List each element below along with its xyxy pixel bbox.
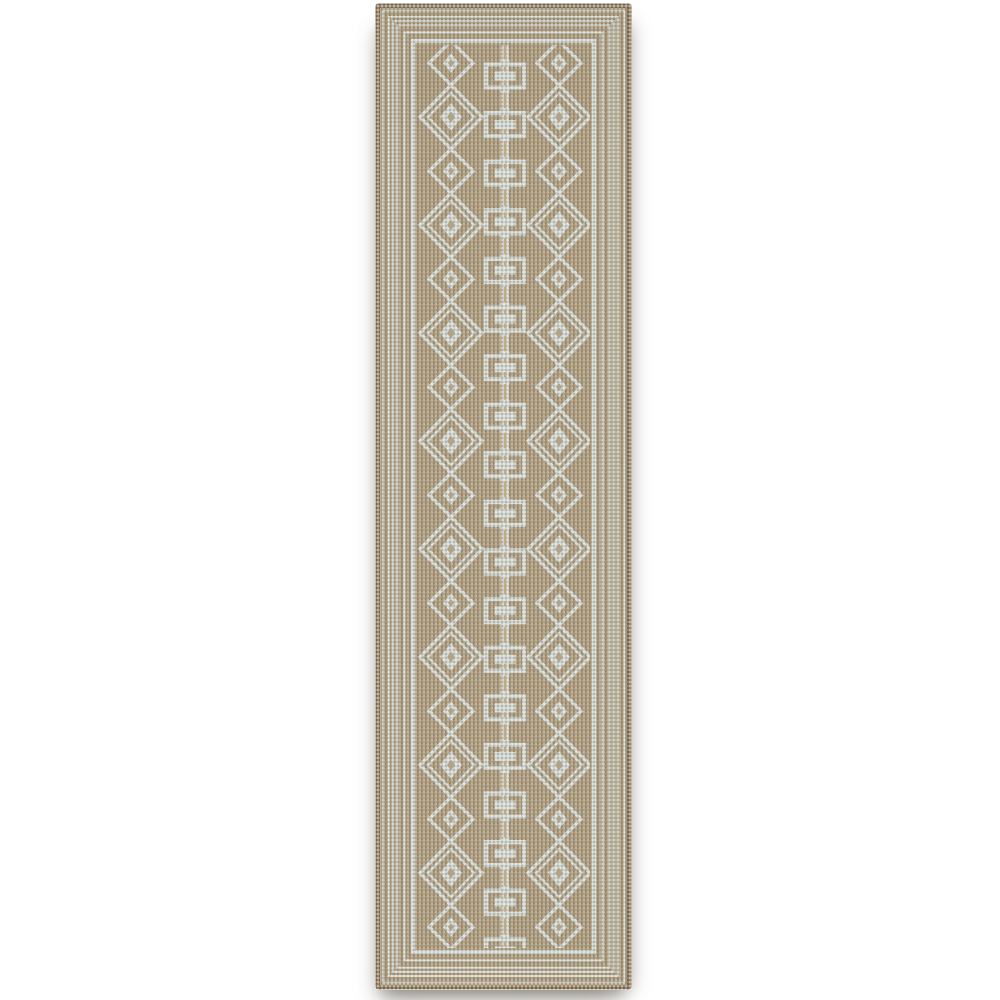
product-photo (0, 0, 1000, 1000)
rug-pattern-svg (375, 3, 632, 990)
rug-runner-image (375, 3, 632, 990)
grain-light (375, 3, 632, 990)
rug-body (375, 3, 632, 990)
